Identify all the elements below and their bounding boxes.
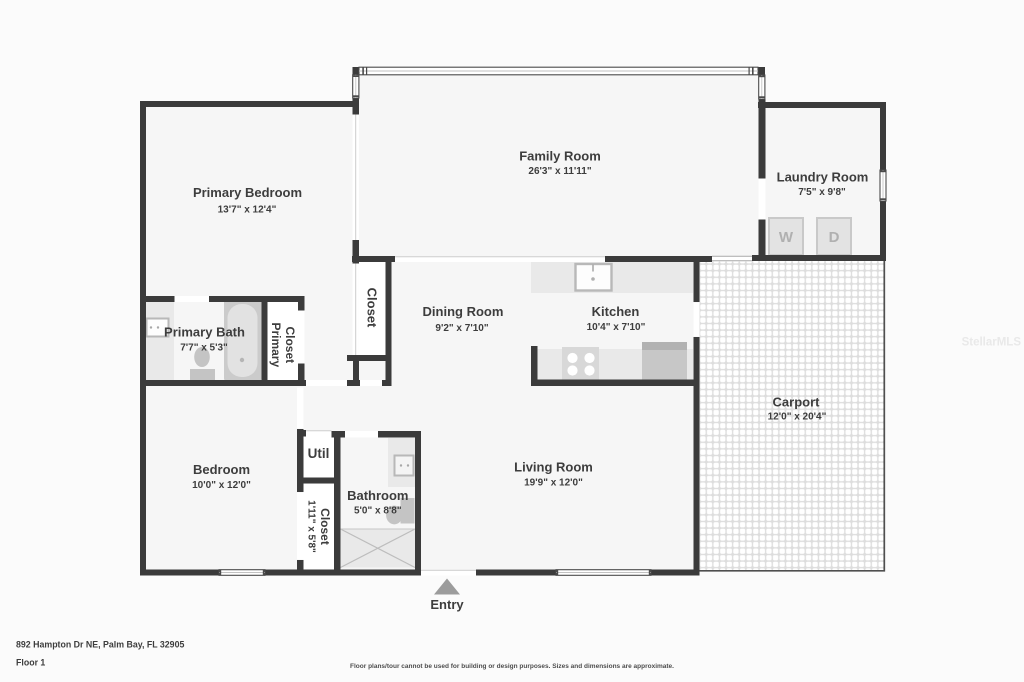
svg-text:Living Room: Living Room [514, 460, 593, 475]
svg-text:1'11" x 5'8": 1'11" x 5'8" [305, 500, 316, 553]
svg-text:892 Hampton Dr NE, Palm Bay, F: 892 Hampton Dr NE, Palm Bay, FL 32905 [16, 640, 184, 650]
svg-text:D: D [829, 229, 840, 246]
svg-text:5'0" x 8'8": 5'0" x 8'8" [354, 506, 402, 517]
svg-text:7'5" x 9'8": 7'5" x 9'8" [798, 187, 846, 198]
svg-text:7'7" x 5'3": 7'7" x 5'3" [180, 343, 228, 354]
svg-text:Primary: Primary [269, 322, 283, 367]
svg-text:Floor 1: Floor 1 [16, 658, 45, 668]
svg-text:Primary Bath: Primary Bath [164, 325, 245, 340]
svg-text:10'0" x 12'0": 10'0" x 12'0" [192, 480, 251, 491]
svg-text:Carport: Carport [773, 395, 821, 410]
svg-text:W: W [779, 229, 794, 246]
svg-text:Bedroom: Bedroom [193, 462, 250, 477]
svg-text:Dining Room: Dining Room [423, 304, 504, 319]
svg-text:9'2" x 7'10": 9'2" x 7'10" [435, 323, 488, 334]
svg-text:19'9" x 12'0": 19'9" x 12'0" [524, 478, 583, 489]
svg-text:Primary Bedroom: Primary Bedroom [193, 185, 302, 200]
svg-text:Family Room: Family Room [519, 149, 601, 164]
svg-text:Entry: Entry [430, 597, 464, 612]
svg-text:Closet: Closet [283, 326, 297, 363]
svg-text:Bathroom: Bathroom [347, 488, 408, 503]
svg-text:12'0" x 20'4": 12'0" x 20'4" [768, 412, 827, 423]
svg-text:Closet: Closet [365, 288, 380, 328]
svg-text:Floor plans/tour cannot be use: Floor plans/tour cannot be used for buil… [350, 663, 674, 670]
svg-text:Laundry Room: Laundry Room [777, 170, 869, 185]
svg-text:Util: Util [308, 446, 330, 461]
svg-text:26'3" x 11'11": 26'3" x 11'11" [528, 166, 591, 177]
svg-text:StellarMLS: StellarMLS [962, 337, 1022, 349]
svg-text:Kitchen: Kitchen [592, 304, 640, 319]
svg-text:13'7" x 12'4": 13'7" x 12'4" [218, 205, 277, 216]
svg-text:10'4" x 7'10": 10'4" x 7'10" [587, 322, 646, 333]
svg-text:Closet: Closet [318, 508, 332, 545]
